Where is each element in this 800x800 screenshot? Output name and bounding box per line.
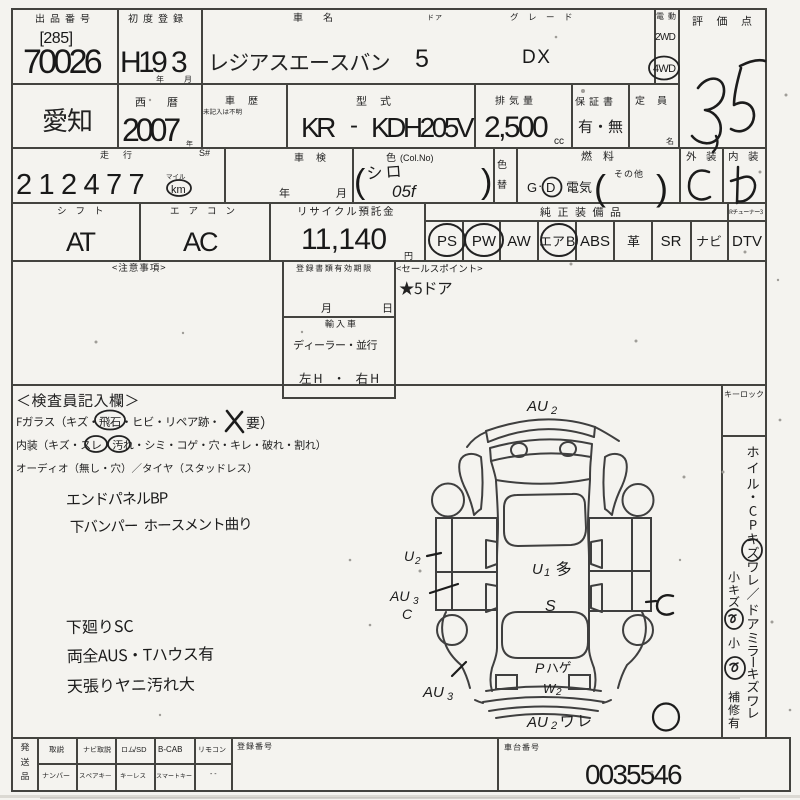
svg-text:S: S (545, 598, 556, 615)
svg-text:(Col.No): (Col.No) (400, 153, 434, 163)
svg-text:AT: AT (66, 227, 96, 257)
svg-text:05f: 05f (392, 182, 418, 201)
svg-text:0035546: 0035546 (585, 759, 682, 790)
svg-text:3: 3 (447, 691, 454, 703)
svg-text:PS: PS (437, 233, 457, 250)
svg-text:ABS: ABS (580, 233, 610, 250)
svg-text:3: 3 (413, 596, 419, 607)
svg-text:2,500: 2,500 (484, 111, 548, 144)
svg-text:- -: - - (210, 771, 217, 778)
svg-text:/SD: /SD (134, 745, 147, 754)
svg-text:KR: KR (301, 112, 335, 143)
svg-text:C: C (402, 606, 413, 622)
svg-text:2: 2 (61, 169, 77, 201)
svg-text:H19: H19 (120, 46, 167, 79)
svg-text:B: B (566, 233, 575, 249)
svg-text:2007: 2007 (122, 112, 180, 148)
svg-text:1: 1 (39, 169, 55, 201)
svg-text:AU: AU (389, 588, 410, 604)
svg-text:B-CAB: B-CAB (158, 745, 182, 754)
svg-text:G: G (527, 180, 537, 195)
svg-text:DTV: DTV (732, 233, 762, 250)
svg-text:): ) (481, 163, 492, 201)
svg-text:-: - (350, 112, 358, 139)
svg-text:(: ( (594, 167, 606, 208)
svg-text:KDH205V: KDH205V (371, 112, 475, 143)
svg-text:2: 2 (550, 405, 557, 417)
svg-text:4WD: 4WD (653, 63, 676, 75)
svg-text:D: D (546, 180, 555, 195)
svg-text:2: 2 (555, 687, 562, 698)
svg-text:2WD: 2WD (655, 32, 676, 43)
svg-text:7: 7 (106, 169, 122, 201)
svg-text:cc: cc (554, 136, 564, 147)
svg-text:AU: AU (526, 398, 548, 415)
svg-text:U: U (532, 561, 543, 578)
svg-text:DX: DX (522, 47, 551, 68)
svg-text:AU: AU (526, 714, 548, 731)
svg-text:5: 5 (415, 45, 429, 73)
svg-text:AU: AU (422, 684, 444, 701)
svg-text:U: U (404, 548, 415, 564)
svg-text:AC: AC (183, 227, 218, 257)
svg-text:11,140: 11,140 (301, 223, 386, 256)
svg-text:2: 2 (414, 556, 421, 567)
svg-text:PW: PW (472, 233, 497, 250)
svg-text:1: 1 (544, 567, 550, 579)
svg-text:AW: AW (507, 233, 531, 250)
svg-text:W: W (543, 681, 557, 696)
svg-text:SR: SR (661, 233, 682, 250)
svg-text:70026: 70026 (23, 43, 102, 81)
svg-text:S#: S# (199, 148, 210, 158)
svg-text:): ) (656, 167, 668, 208)
svg-text:(: ( (354, 163, 366, 201)
svg-text:4: 4 (84, 169, 100, 201)
svg-text:2: 2 (16, 169, 32, 201)
svg-text:7: 7 (129, 169, 145, 201)
svg-text:P: P (535, 660, 545, 676)
svg-text:3: 3 (171, 46, 188, 79)
svg-text:·: · (538, 178, 542, 193)
svg-text:2: 2 (550, 720, 557, 732)
